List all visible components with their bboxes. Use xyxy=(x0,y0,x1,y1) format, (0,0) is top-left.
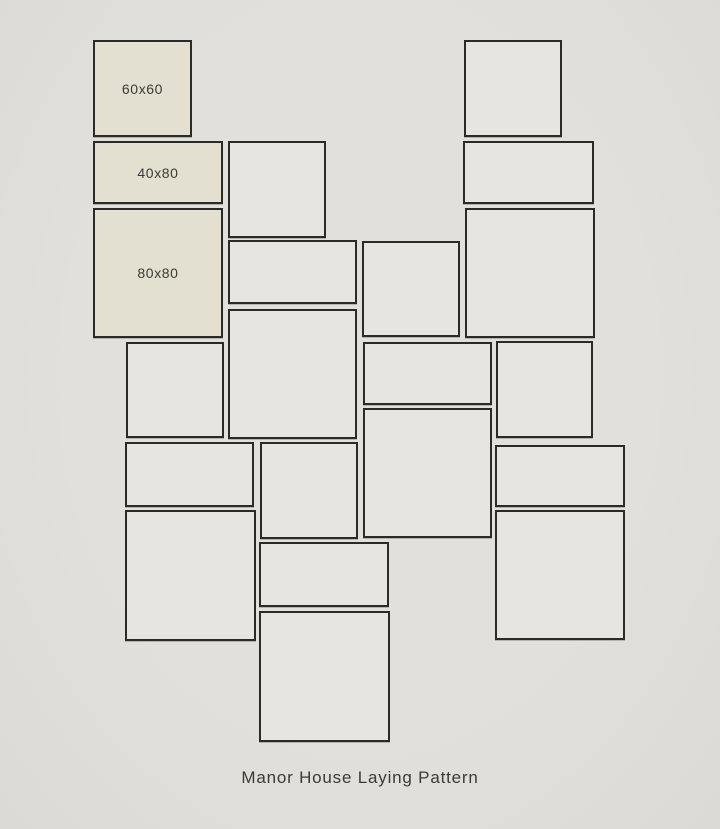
tile-40x80: 40x80 xyxy=(93,141,223,204)
laying-pattern-diagram: 60x6040x8080x80 Manor House Laying Patte… xyxy=(0,0,720,829)
tile-size-label: 80x80 xyxy=(137,265,178,281)
tile xyxy=(228,240,357,304)
tile-size-label: 40x80 xyxy=(137,165,178,181)
tile xyxy=(228,309,357,439)
tile xyxy=(259,542,389,607)
tile xyxy=(362,241,460,337)
tile xyxy=(126,342,224,438)
tile xyxy=(363,408,492,538)
tile xyxy=(465,208,595,338)
tile xyxy=(463,141,594,204)
tile xyxy=(125,510,256,641)
tile-60x60: 60x60 xyxy=(93,40,192,137)
tile xyxy=(260,442,358,539)
tile xyxy=(496,341,593,438)
tile xyxy=(363,342,492,405)
tile xyxy=(125,442,254,507)
tile xyxy=(464,40,562,137)
tile xyxy=(228,141,326,238)
tile xyxy=(259,611,390,742)
tile xyxy=(495,510,625,640)
tile-size-label: 60x60 xyxy=(122,81,163,97)
tile xyxy=(495,445,625,507)
pattern-title: Manor House Laying Pattern xyxy=(0,768,720,788)
tile-80x80: 80x80 xyxy=(93,208,223,338)
